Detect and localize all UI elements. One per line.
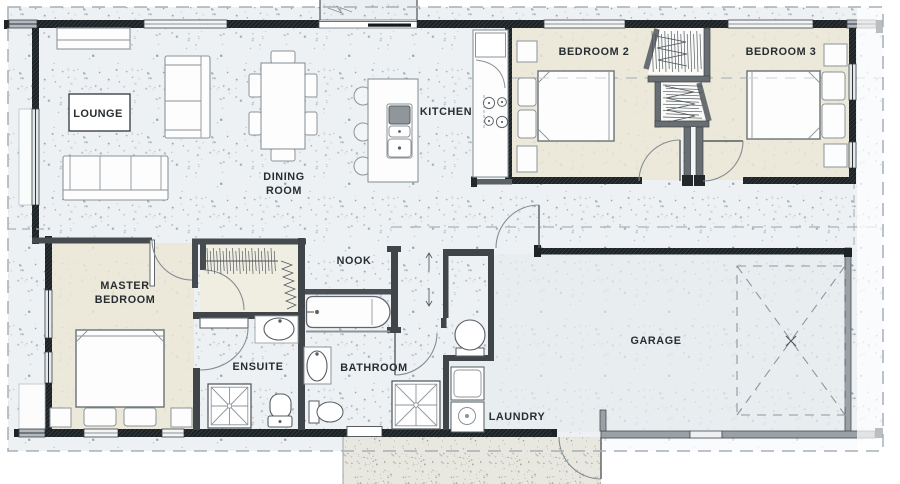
svg-text:GARAGE: GARAGE	[631, 335, 682, 347]
svg-text:KITCHEN: KITCHEN	[420, 106, 472, 118]
svg-text:ENSUITE: ENSUITE	[233, 361, 284, 373]
svg-text:BEDROOM: BEDROOM	[95, 294, 156, 306]
svg-text:ROOM: ROOM	[266, 185, 302, 197]
svg-text:MASTER: MASTER	[100, 280, 149, 292]
svg-text:LOUNGE: LOUNGE	[73, 108, 122, 120]
svg-text:NOOK: NOOK	[337, 255, 372, 267]
svg-text:DINING: DINING	[263, 171, 304, 183]
svg-text:BEDROOM 3: BEDROOM 3	[746, 46, 817, 58]
svg-text:LAUNDRY: LAUNDRY	[489, 411, 546, 423]
svg-text:BEDROOM 2: BEDROOM 2	[559, 46, 630, 58]
svg-text:BATHROOM: BATHROOM	[340, 362, 408, 374]
